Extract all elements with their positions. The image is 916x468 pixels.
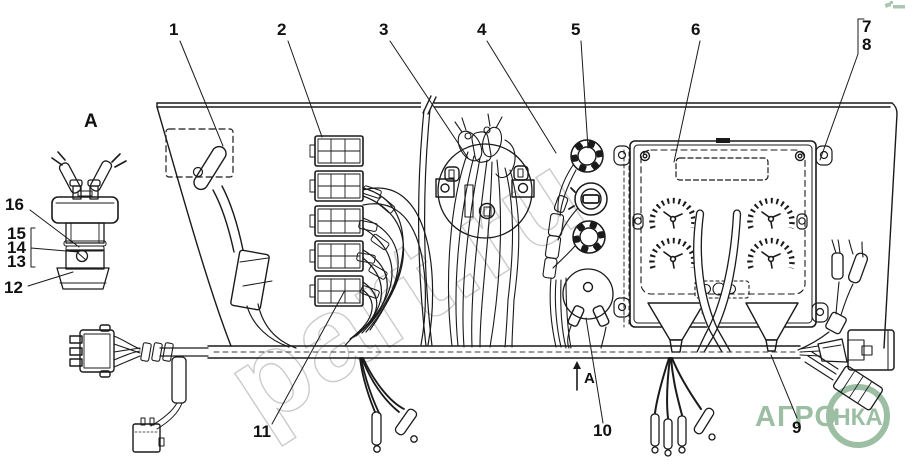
callout-12: 12: [4, 279, 23, 296]
connector-block: [310, 136, 363, 166]
branch-small-connector: [133, 357, 186, 452]
callout-7: 7: [862, 18, 871, 35]
terminal-fan-right: [651, 358, 715, 456]
buzzer-item10: [563, 269, 613, 348]
callout-2: 2: [277, 21, 286, 38]
cluster-gauges: [652, 201, 792, 268]
callout-6: 6: [691, 21, 700, 38]
diagonal-watermark-text: part.ru: [204, 126, 607, 452]
callout-15: 15: [7, 225, 26, 242]
instrument-cluster-item6: [614, 138, 832, 352]
logo-circle-text: НКА: [833, 404, 882, 431]
callout-10: 10: [593, 422, 612, 439]
callout-4: 4: [477, 21, 486, 38]
connector-block: [310, 171, 363, 201]
corner-watermark-fragment: [885, 1, 905, 9]
connector-block: [310, 206, 363, 236]
callout-5: 5: [571, 21, 580, 38]
left-branch-wires: [114, 336, 140, 367]
diagonal-watermark: part.ru: [204, 126, 607, 452]
callout-16: 16: [5, 196, 24, 213]
callout-3: 3: [379, 21, 388, 38]
view-arrow-a: [573, 361, 581, 390]
parts-diagram-page: part.ru АГРО НКА: [0, 0, 916, 468]
detail-view-label: A: [84, 112, 98, 131]
callout-11: 11: [253, 423, 271, 440]
callout-1: 1: [169, 21, 178, 38]
left-end-connector: [70, 325, 114, 377]
detail-a-part: [52, 152, 126, 289]
site-logo-watermark: АГРО НКА: [755, 387, 887, 445]
bulb-socket: [571, 140, 603, 172]
harness-diagram: part.ru АГРО НКА: [0, 0, 916, 468]
view-arrow-label: A: [584, 371, 595, 386]
callout-9: 9: [792, 419, 801, 436]
callout-8: 8: [862, 36, 871, 53]
